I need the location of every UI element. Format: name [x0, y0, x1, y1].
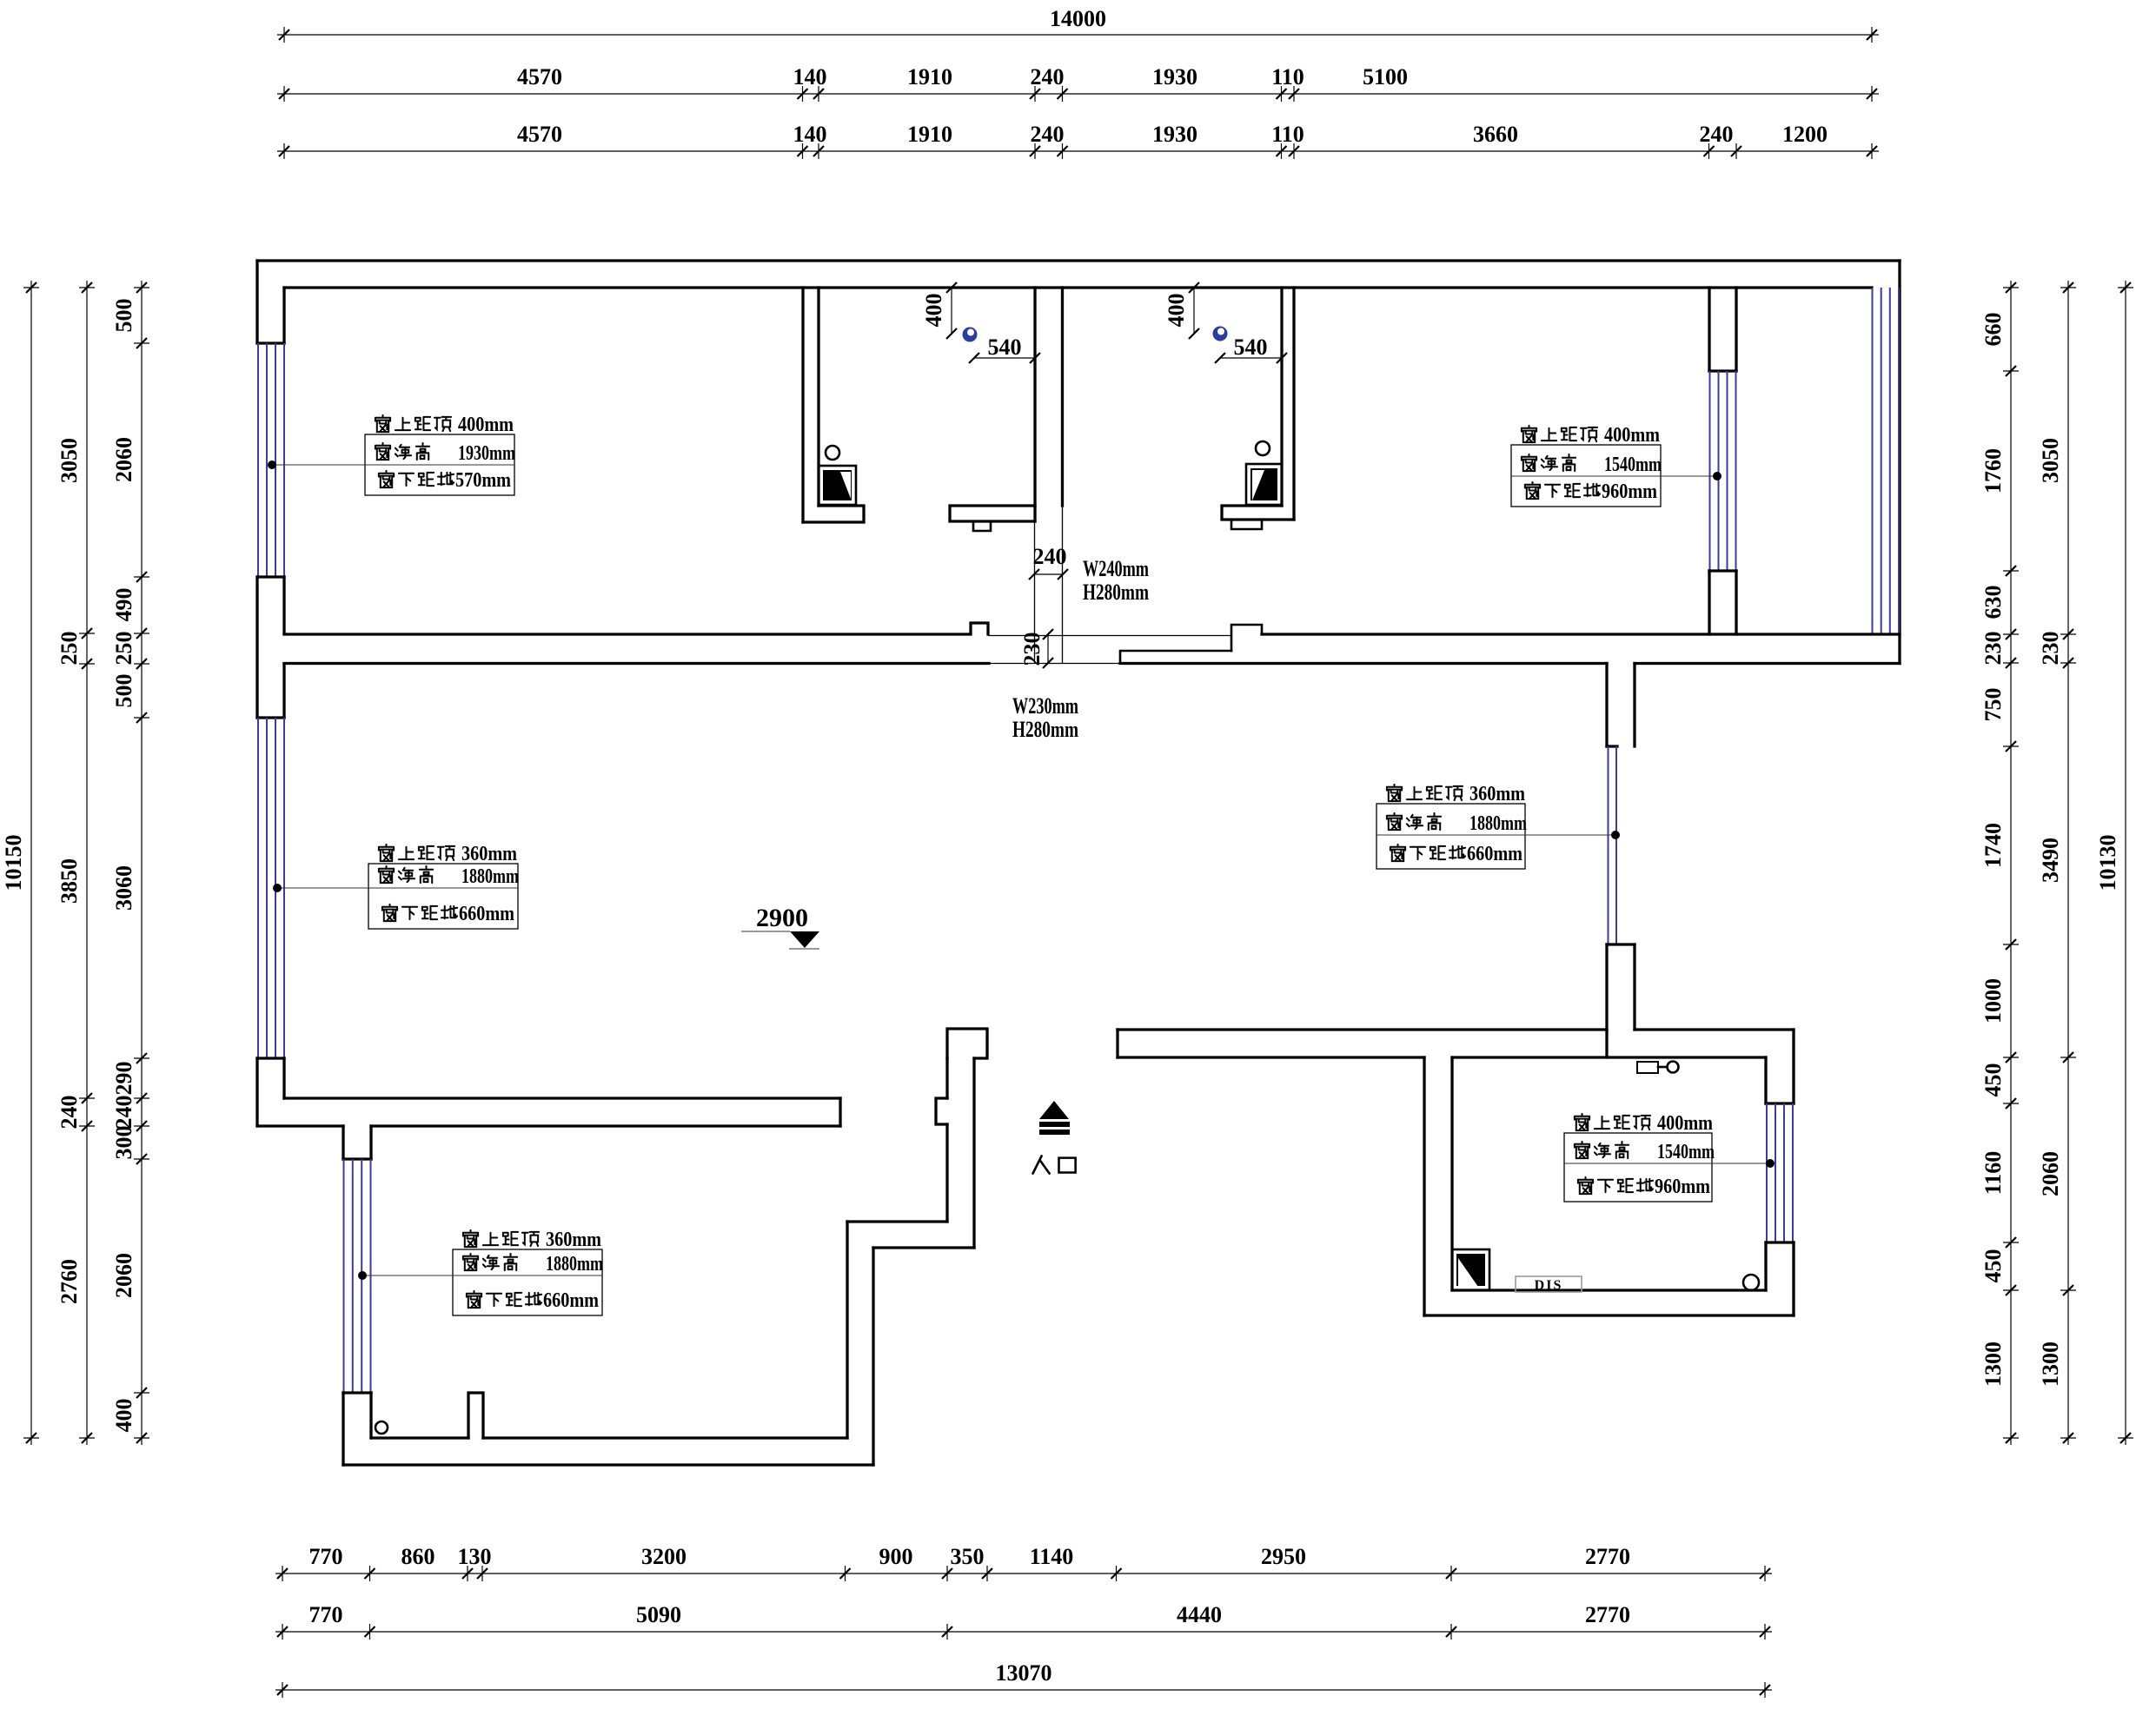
svg-text:2900: 2900 — [756, 904, 808, 932]
svg-text:630: 630 — [1980, 586, 2006, 619]
svg-text:10150: 10150 — [1, 835, 26, 891]
svg-text:770: 770 — [309, 1602, 343, 1627]
svg-text:14000: 14000 — [1050, 6, 1106, 31]
svg-text:400: 400 — [1164, 294, 1189, 328]
svg-text:1880mm: 1880mm — [461, 865, 519, 888]
svg-text:660mm: 660mm — [543, 1289, 599, 1312]
svg-text:250: 250 — [56, 632, 82, 666]
svg-text:1930: 1930 — [1152, 64, 1197, 89]
svg-text:1200: 1200 — [1782, 122, 1828, 147]
svg-text:5090: 5090 — [636, 1602, 681, 1627]
svg-text:240: 240 — [56, 1096, 82, 1130]
svg-text:2060: 2060 — [111, 437, 136, 482]
svg-text:10130: 10130 — [2095, 835, 2120, 891]
svg-text:1540mm: 1540mm — [1657, 1141, 1715, 1163]
svg-text:290: 290 — [111, 1062, 136, 1096]
svg-text:750: 750 — [1980, 688, 2006, 722]
svg-text:1880mm: 1880mm — [1469, 812, 1527, 835]
svg-text:1880mm: 1880mm — [546, 1253, 603, 1275]
svg-text:770: 770 — [309, 1544, 343, 1569]
svg-text:570mm: 570mm — [455, 469, 511, 492]
svg-text:4570: 4570 — [517, 122, 562, 147]
svg-text:400mm: 400mm — [1604, 424, 1660, 447]
svg-text:2950: 2950 — [1261, 1544, 1306, 1569]
svg-text:240: 240 — [1700, 122, 1734, 147]
svg-text:1910: 1910 — [907, 122, 952, 147]
svg-text:240: 240 — [1031, 64, 1065, 89]
svg-text:350: 350 — [951, 1544, 985, 1569]
svg-text:1910: 1910 — [907, 64, 952, 89]
svg-text:2770: 2770 — [1585, 1544, 1630, 1569]
svg-text:3850: 3850 — [56, 858, 82, 904]
svg-text:1300: 1300 — [2038, 1342, 2063, 1387]
svg-text:400mm: 400mm — [1657, 1112, 1713, 1135]
svg-text:3200: 3200 — [641, 1544, 687, 1569]
svg-text:1930: 1930 — [1152, 122, 1197, 147]
svg-text:1930mm: 1930mm — [458, 442, 515, 465]
svg-text:240: 240 — [111, 1096, 136, 1130]
svg-text:900: 900 — [879, 1544, 913, 1569]
svg-text:3050: 3050 — [56, 438, 82, 483]
svg-text:H280mm: H280mm — [1012, 717, 1078, 742]
svg-text:2060: 2060 — [111, 1253, 136, 1298]
svg-text:3660: 3660 — [1473, 122, 1518, 147]
svg-text:450: 450 — [1980, 1063, 2006, 1097]
svg-text:240: 240 — [1031, 122, 1065, 147]
svg-text:1000: 1000 — [1980, 978, 2006, 1024]
svg-text:540: 540 — [1234, 335, 1268, 360]
svg-text:110: 110 — [1271, 64, 1304, 89]
svg-text:3060: 3060 — [111, 865, 136, 911]
svg-text:450: 450 — [1980, 1249, 2006, 1283]
svg-text:500: 500 — [111, 674, 136, 708]
svg-text:860: 860 — [401, 1544, 435, 1569]
svg-text:140: 140 — [793, 64, 827, 89]
svg-text:240: 240 — [1033, 544, 1067, 569]
svg-text:360mm: 360mm — [1469, 783, 1525, 805]
svg-text:400: 400 — [921, 294, 946, 328]
svg-text:3490: 3490 — [2038, 838, 2063, 883]
svg-text:W230mm: W230mm — [1012, 693, 1078, 719]
svg-text:1140: 1140 — [1030, 1544, 1074, 1569]
svg-text:2060: 2060 — [2038, 1151, 2063, 1196]
svg-text:4570: 4570 — [517, 64, 562, 89]
svg-text:400mm: 400mm — [458, 414, 514, 436]
svg-text:3050: 3050 — [2038, 438, 2063, 483]
svg-text:490: 490 — [111, 588, 136, 622]
svg-text:250: 250 — [111, 632, 136, 666]
svg-text:360mm: 360mm — [461, 843, 517, 865]
svg-text:110: 110 — [1271, 122, 1304, 147]
svg-text:660mm: 660mm — [1467, 843, 1522, 865]
svg-text:130: 130 — [458, 1544, 492, 1569]
svg-text:660: 660 — [1980, 313, 2006, 347]
svg-text:2760: 2760 — [56, 1259, 82, 1304]
svg-text:960mm: 960mm — [1655, 1176, 1710, 1198]
svg-text:230: 230 — [2038, 632, 2063, 666]
svg-text:400: 400 — [111, 1399, 136, 1433]
svg-text:13070: 13070 — [996, 1660, 1052, 1686]
svg-text:1300: 1300 — [1980, 1342, 2006, 1387]
svg-text:230: 230 — [1980, 632, 2006, 666]
svg-text:1160: 1160 — [1980, 1151, 2006, 1196]
svg-text:H280mm: H280mm — [1083, 580, 1149, 605]
svg-text:140: 140 — [793, 122, 827, 147]
svg-text:W240mm: W240mm — [1083, 556, 1149, 581]
svg-text:540: 540 — [988, 335, 1022, 360]
svg-text:2770: 2770 — [1585, 1602, 1630, 1627]
svg-text:960mm: 960mm — [1602, 480, 1657, 503]
svg-text:660mm: 660mm — [459, 903, 514, 925]
svg-text:4440: 4440 — [1177, 1602, 1222, 1627]
svg-text:360mm: 360mm — [546, 1229, 601, 1251]
svg-text:500: 500 — [111, 299, 136, 333]
svg-text:230: 230 — [1019, 633, 1045, 666]
svg-text:1540mm: 1540mm — [1604, 454, 1662, 476]
svg-text:300: 300 — [111, 1126, 136, 1160]
svg-text:1740: 1740 — [1980, 823, 2006, 868]
svg-text:1760: 1760 — [1980, 448, 2006, 494]
svg-text:5100: 5100 — [1363, 64, 1408, 89]
svg-text:DIS: DIS — [1535, 1278, 1563, 1293]
